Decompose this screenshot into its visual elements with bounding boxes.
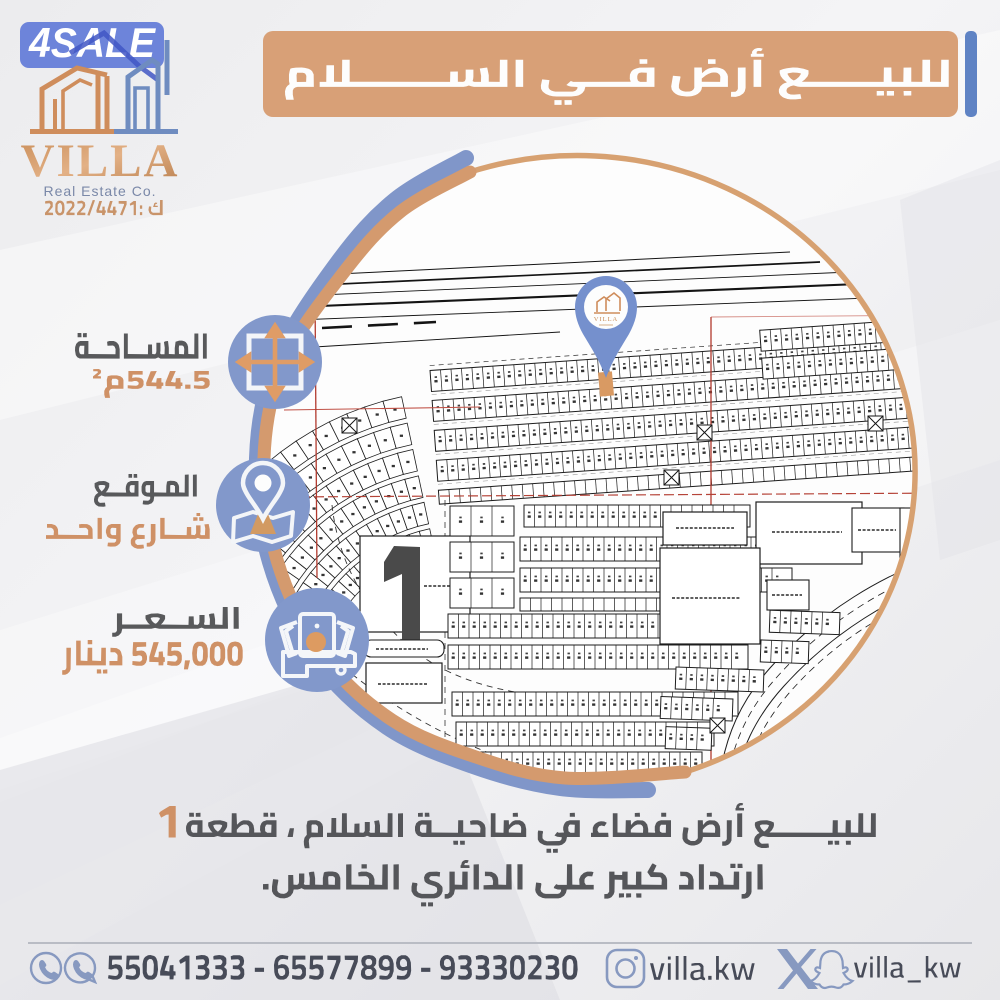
svg-text:VILLA: VILLA [21, 135, 180, 187]
svg-text:Real Estate Co.: Real Estate Co. [43, 183, 156, 199]
svg-text:VILLA: VILLA [594, 316, 619, 323]
